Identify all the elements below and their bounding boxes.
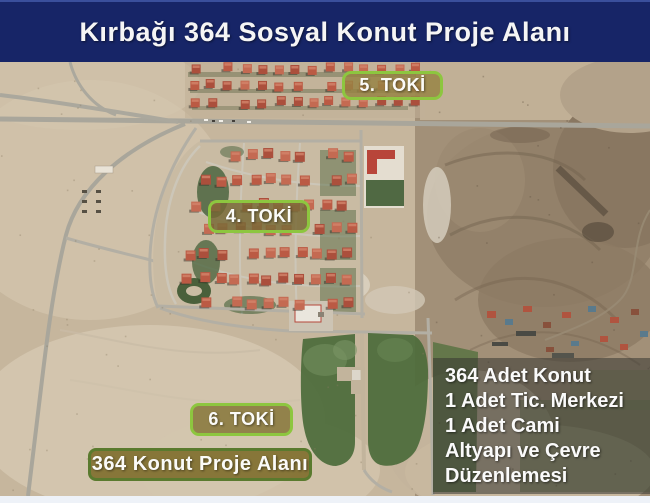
map-label-4-toki: 4. TOKİ	[208, 200, 310, 233]
map-label-project-area: 364 Konut Proje Alanı	[88, 448, 312, 481]
page-title: Kırbağı 364 Sosyal Konut Proje Alanı	[79, 17, 570, 48]
presentation-slide: Kırbağı 364 Sosyal Konut Proje Alanı	[0, 0, 650, 503]
info-line-cami: 1 Adet Cami	[445, 414, 646, 439]
info-line-tic-merkezi: 1 Adet Tic. Merkezi	[445, 389, 646, 414]
satellite-map: 5. TOKİ 4. TOKİ 6. TOKİ 364 Konut Proje …	[0, 62, 650, 496]
map-label-6-toki: 6. TOKİ	[190, 403, 293, 436]
info-line-konut: 364 Adet Konut	[445, 364, 646, 389]
bottom-strip	[0, 496, 650, 503]
info-line-altyapi: Altyapı ve Çevre Düzenlemesi	[445, 439, 646, 489]
map-label-5-toki: 5. TOKİ	[342, 71, 443, 100]
project-info-box: 364 Adet Konut 1 Adet Tic. Merkezi 1 Ade…	[433, 358, 650, 494]
slide-title-bar: Kırbağı 364 Sosyal Konut Proje Alanı	[0, 0, 650, 62]
